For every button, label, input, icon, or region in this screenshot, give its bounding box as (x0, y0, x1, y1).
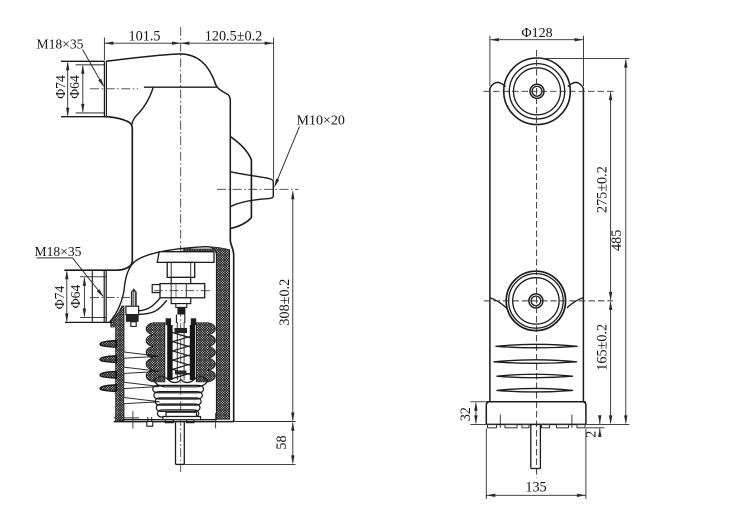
svg-text:Φ64: Φ64 (67, 75, 82, 99)
svg-text:M18×35: M18×35 (35, 244, 82, 259)
svg-text:308±0.2: 308±0.2 (277, 279, 293, 326)
svg-text:101.5: 101.5 (129, 29, 161, 45)
svg-text:M18×35: M18×35 (37, 36, 84, 51)
svg-text:32: 32 (458, 407, 474, 421)
svg-text:135: 135 (525, 479, 546, 495)
svg-text:Φ74: Φ74 (52, 286, 67, 310)
svg-text:485: 485 (609, 230, 625, 251)
svg-text:120.5±0.2: 120.5±0.2 (205, 29, 262, 45)
svg-text:165±0.2: 165±0.2 (595, 324, 611, 371)
svg-text:Φ128: Φ128 (521, 26, 552, 41)
svg-text:58: 58 (274, 435, 290, 449)
svg-text:M10×20: M10×20 (297, 113, 345, 128)
svg-text:Φ64: Φ64 (68, 285, 83, 309)
svg-text:275±0.2: 275±0.2 (595, 166, 611, 213)
svg-text:Φ74: Φ74 (53, 75, 68, 99)
